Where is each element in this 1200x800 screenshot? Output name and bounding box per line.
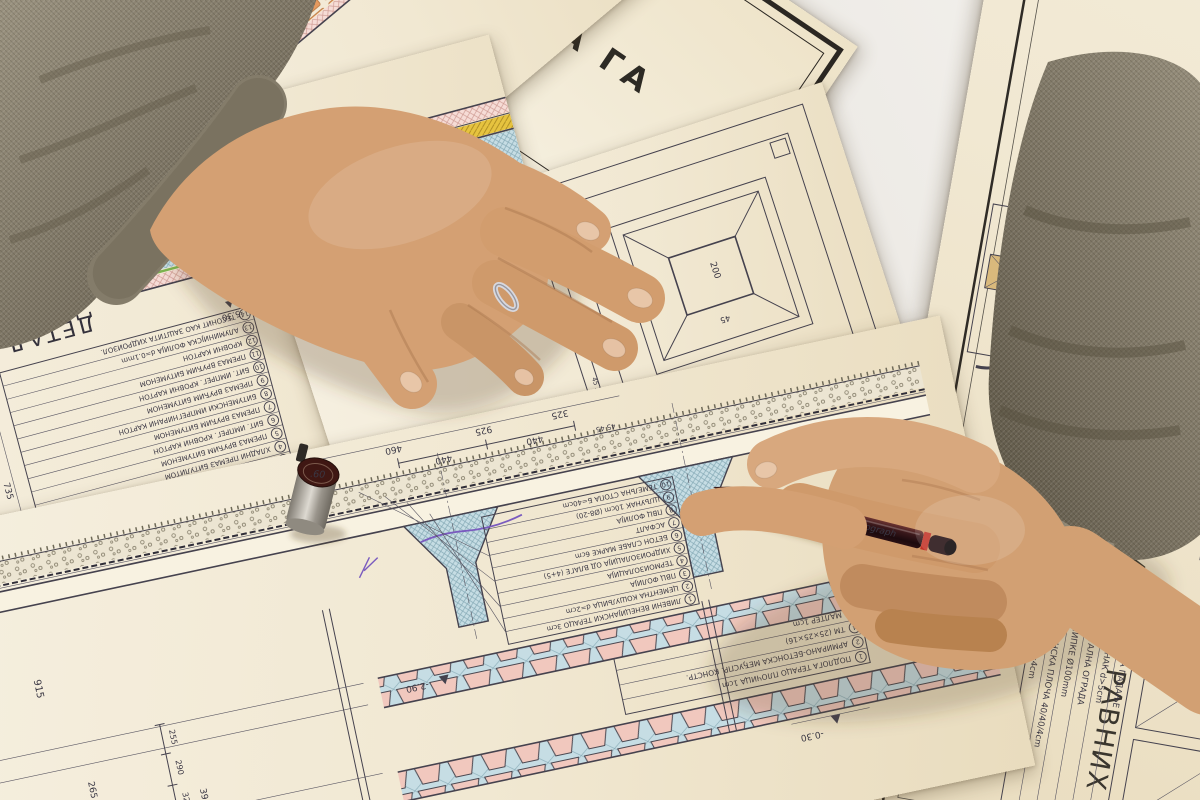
- legend-no: 37: [1056, 605, 1065, 615]
- callout: 37: [1059, 327, 1068, 337]
- legend-no: 4: [679, 556, 685, 565]
- dim-label: 255: [167, 729, 179, 746]
- dim-label: 325: [550, 407, 569, 420]
- callout: 36: [1064, 302, 1073, 312]
- callout: 33: [1078, 225, 1087, 235]
- dim-label: 735: [0, 482, 14, 501]
- dim-label: 925: [474, 423, 493, 436]
- dim-label: 45: [719, 313, 731, 325]
- dim-label: 440: [525, 433, 544, 446]
- legend-no: 4: [852, 623, 858, 632]
- callout: 38: [1055, 353, 1064, 363]
- dim-label: 38: [0, 334, 9, 344]
- legend-no: 4: [277, 442, 283, 451]
- legend-no: 2: [855, 637, 861, 646]
- legend-no: 5: [274, 429, 280, 438]
- legend-no: 36: [1074, 608, 1083, 618]
- legend-no: 3: [682, 569, 688, 578]
- legend-no: 6: [270, 415, 276, 424]
- dim-label: 200: [707, 261, 722, 281]
- legend-no: 5: [676, 543, 682, 552]
- dim-label: 915: [31, 679, 46, 700]
- legend-no: 1: [687, 594, 693, 603]
- legend-no: 33: [1126, 617, 1135, 627]
- legend-no: 7: [671, 518, 677, 527]
- legend-item: ПЕСАК d=4cm: [1026, 616, 1047, 680]
- dim-label: 440: [434, 452, 453, 465]
- legend-no: 38: [1039, 602, 1048, 612]
- dim-label: 390: [197, 788, 210, 800]
- dim-label: 460: [384, 442, 403, 455]
- legend-no: 1: [858, 652, 864, 661]
- dim-label: 448: [549, 316, 564, 336]
- callout: 22: [128, 21, 140, 33]
- dim-label: 265: [85, 781, 98, 800]
- legend-no: 35: [1091, 611, 1100, 621]
- pen-annotation: [356, 556, 381, 578]
- legend-no: 7: [266, 402, 272, 411]
- legend-no: 9: [259, 376, 265, 385]
- legend-no: 10: [661, 479, 671, 489]
- legend-no: 34: [1108, 614, 1117, 624]
- callout: 35: [1069, 276, 1078, 286]
- legend-no: 8: [263, 389, 269, 398]
- dim-label: 320: [180, 791, 192, 800]
- callout: 34: [1073, 251, 1082, 261]
- legend-no: 6: [674, 531, 680, 540]
- photo-scene: Р-1 ЗЕМЉА ГА 21 22 23 24 25 26 27 28: [0, 0, 1200, 800]
- legend-no: 2: [684, 582, 690, 591]
- legend-no: 8: [668, 505, 674, 514]
- waffle-bands: [0, 475, 1008, 800]
- level-label: -0.30: [799, 728, 824, 743]
- callout: 21: [86, 56, 98, 68]
- dim-label: 290: [173, 759, 185, 776]
